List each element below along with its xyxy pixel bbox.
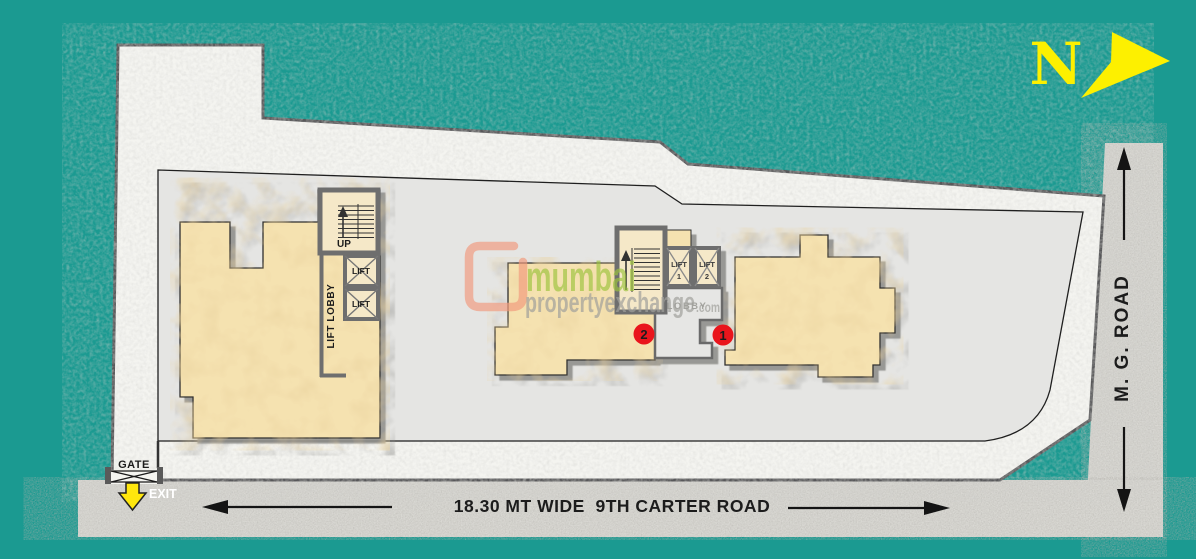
core-tan-block (665, 230, 691, 248)
lift-1-label: LIFT (671, 260, 687, 269)
lift-shaft-2: LIFT 2 (695, 248, 719, 286)
unit-marker-1[interactable]: 1 (713, 325, 734, 346)
gate-post-right (157, 467, 163, 484)
exit-label: EXIT (149, 487, 177, 501)
gate-label: GATE (118, 459, 150, 471)
lift-label: LIFT (352, 299, 371, 309)
north-label: N (1029, 30, 1082, 98)
lift-2-number: 2 (705, 272, 709, 281)
lift-2-label: LIFT (699, 260, 715, 269)
watermark-tld: .com (696, 299, 720, 315)
lift-shaft-1: LIFT 1 (667, 248, 691, 286)
unit-marker-number[interactable]: 1 (719, 328, 726, 343)
watermark-brand-suffix: propertyexchange (525, 287, 695, 319)
gate-post-left (105, 467, 111, 484)
mg-road-label: M. G. ROAD (1112, 274, 1133, 402)
carter-road-label: 18.30 MT WIDE 9TH CARTER ROAD (454, 496, 770, 516)
unit-marker-number[interactable]: 2 (640, 327, 647, 342)
lift-1-number: 1 (677, 272, 681, 281)
lift-label: LIFT (352, 266, 371, 276)
lift-shaft: LIFT (345, 289, 378, 319)
lift-lobby-label: LIFT LOBBY (326, 284, 337, 349)
lift-shaft: LIFT (345, 256, 378, 286)
unit-marker-2[interactable]: 2 (634, 324, 655, 345)
site-plan-canvas: UP LIFT LOBBY LIFT LIFT (0, 0, 1196, 559)
site-plan-page: UP LIFT LOBBY LIFT LIFT (0, 0, 1196, 559)
up-label: UP (337, 239, 351, 250)
